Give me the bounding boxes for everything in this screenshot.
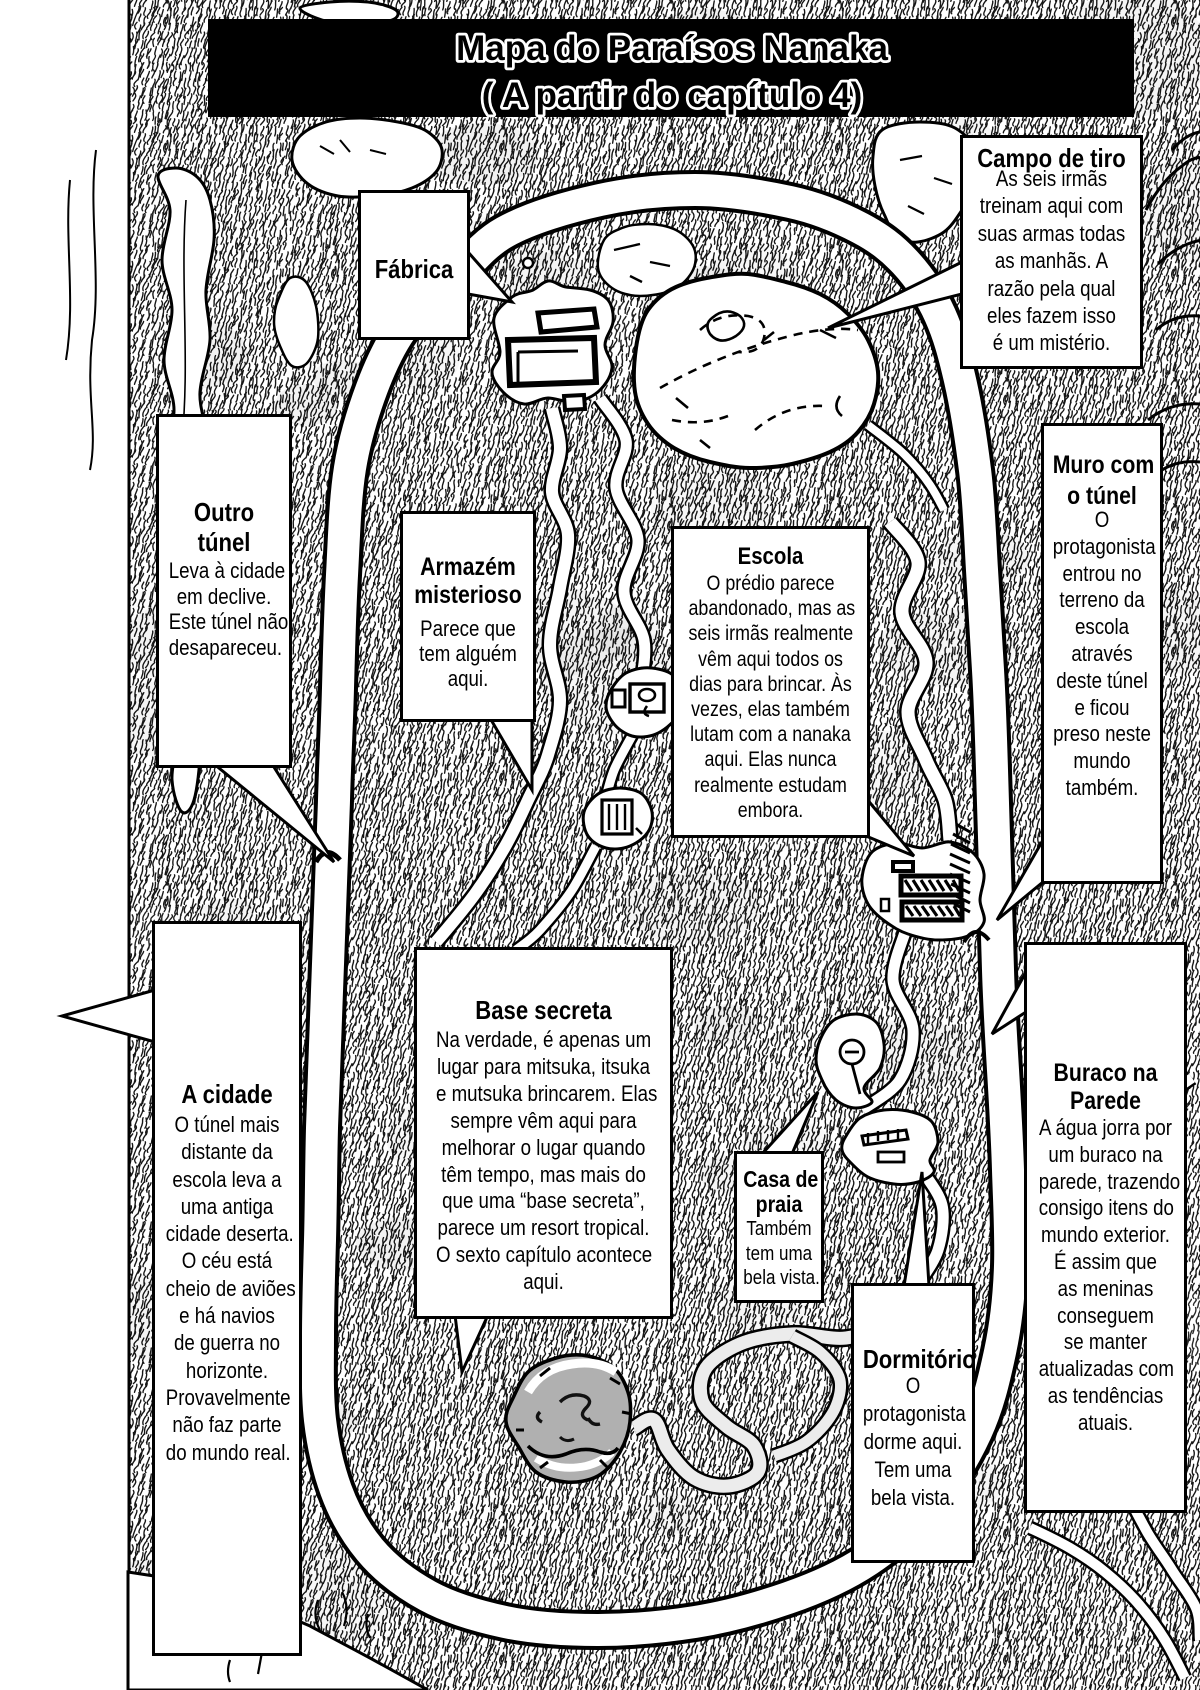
svg-text:( A partir do capítulo 4): ( A partir do capítulo 4) — [482, 76, 862, 115]
svg-text:Mapa do Paraísos Nanaka: Mapa do Paraísos Nanaka — [456, 29, 888, 68]
